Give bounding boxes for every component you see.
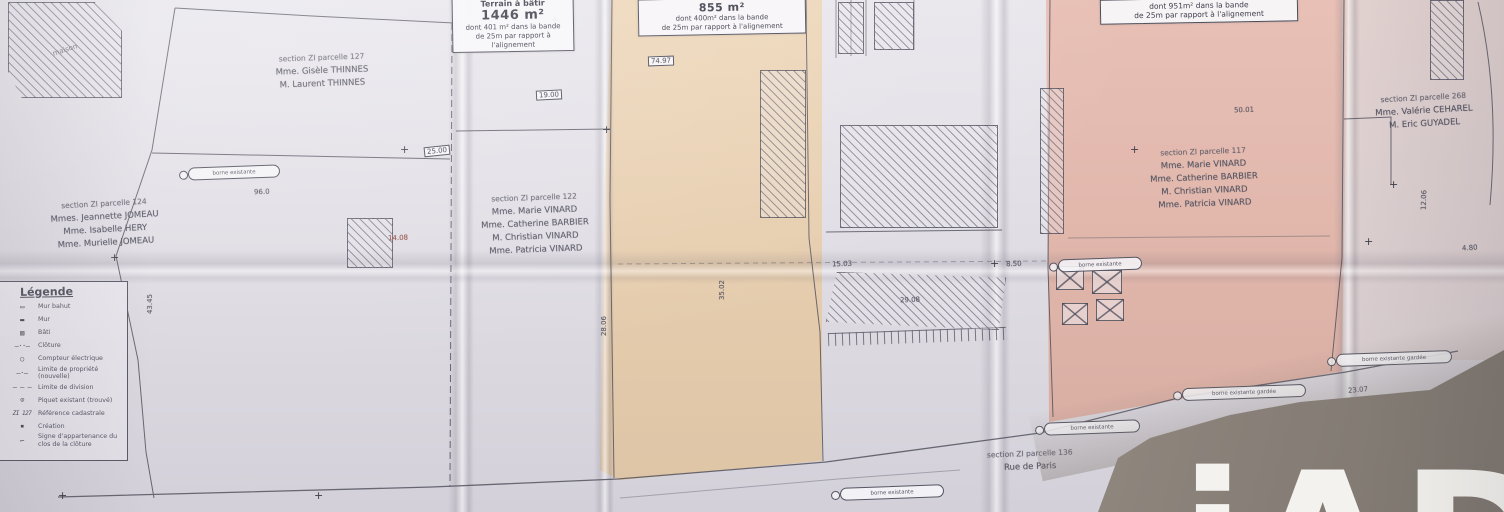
legend-item: —·— Limite de propriété (nouvelle) [6,366,123,380]
new-property-limit-symbol: —·— [6,369,38,377]
legend-box: Légende ▭ Mur bahut ▬ Mur ▨ Bâti —··— Cl… [0,281,128,461]
legend-item: ▨ Bâti [6,327,123,339]
plan-photo: maison25.0019.0074.9743.4528.0615.0329.0… [0,0,1504,512]
lot2-area-label: 855 m² dont 400m² dans la bande de 25m p… [638,0,807,36]
electric-meter-symbol: ○ [6,355,38,363]
legend-item: ⌐ Signe d'appartenance du clos de la clô… [6,433,123,447]
legend-item-label: Mur bahut [38,303,70,310]
legend-item: ⊙ Piquet existant (trouvé) [6,394,123,406]
legend-item-label: Mur [38,316,50,323]
legend-item: ▭ Mur bahut [6,301,123,313]
found-monument-symbol: ⊙ [6,396,38,404]
lot1-area-label: Terrain à bâtir 1446 m² dont 401 m² dans… [452,0,575,53]
legend-item: ZI 127 Référence cadastrale [6,407,123,419]
low-wall-symbol: ▭ [6,303,38,311]
legend-item: ▪ Création [6,420,123,432]
legend-item: —··— Clôture [6,340,123,352]
legend-item: ○ Compteur électrique [6,353,123,365]
legend-item-label: Bâti [38,329,50,336]
legend-title: Légende [20,284,123,299]
legend-item-label: Clôture [38,342,61,349]
legend-item-label: Piquet existant (trouvé) [38,397,112,404]
lot2-sub2: de 25m par rapport à l'alignement [643,21,801,33]
building-symbol: ▨ [6,329,38,337]
fence-ownership-symbol: ⌐ [6,437,38,445]
legend-item-label: Compteur électrique [38,355,103,362]
legend-item-label: Limite de division [38,384,93,391]
creation-symbol: ▪ [6,422,38,430]
legend-item-label: Référence cadastrale [38,410,105,417]
lot3-area-label: dont 951m² dans la bande de 25m par rapp… [1100,0,1298,24]
cadastral-reference-symbol: ZI 127 [6,410,38,417]
wall-symbol: ▬ [6,316,38,324]
lot1-sub2: de 25m par rapport à l'alignement [457,31,569,50]
legend-item-label: Limite de propriété (nouvelle) [38,366,123,380]
legend-item: – – – Limite de division [6,381,123,393]
fence-symbol: —··— [6,342,38,350]
division-limit-symbol: – – – [6,383,38,391]
lot3-sub2: de 25m par rapport à l'alignement [1105,9,1293,22]
legend-item: ▬ Mur [6,314,123,326]
iad-watermark: iAD [1180,448,1504,512]
legend-item-label: Création [38,423,65,430]
legend-item-label: Signe d'appartenance du clos de la clôtu… [38,433,123,447]
